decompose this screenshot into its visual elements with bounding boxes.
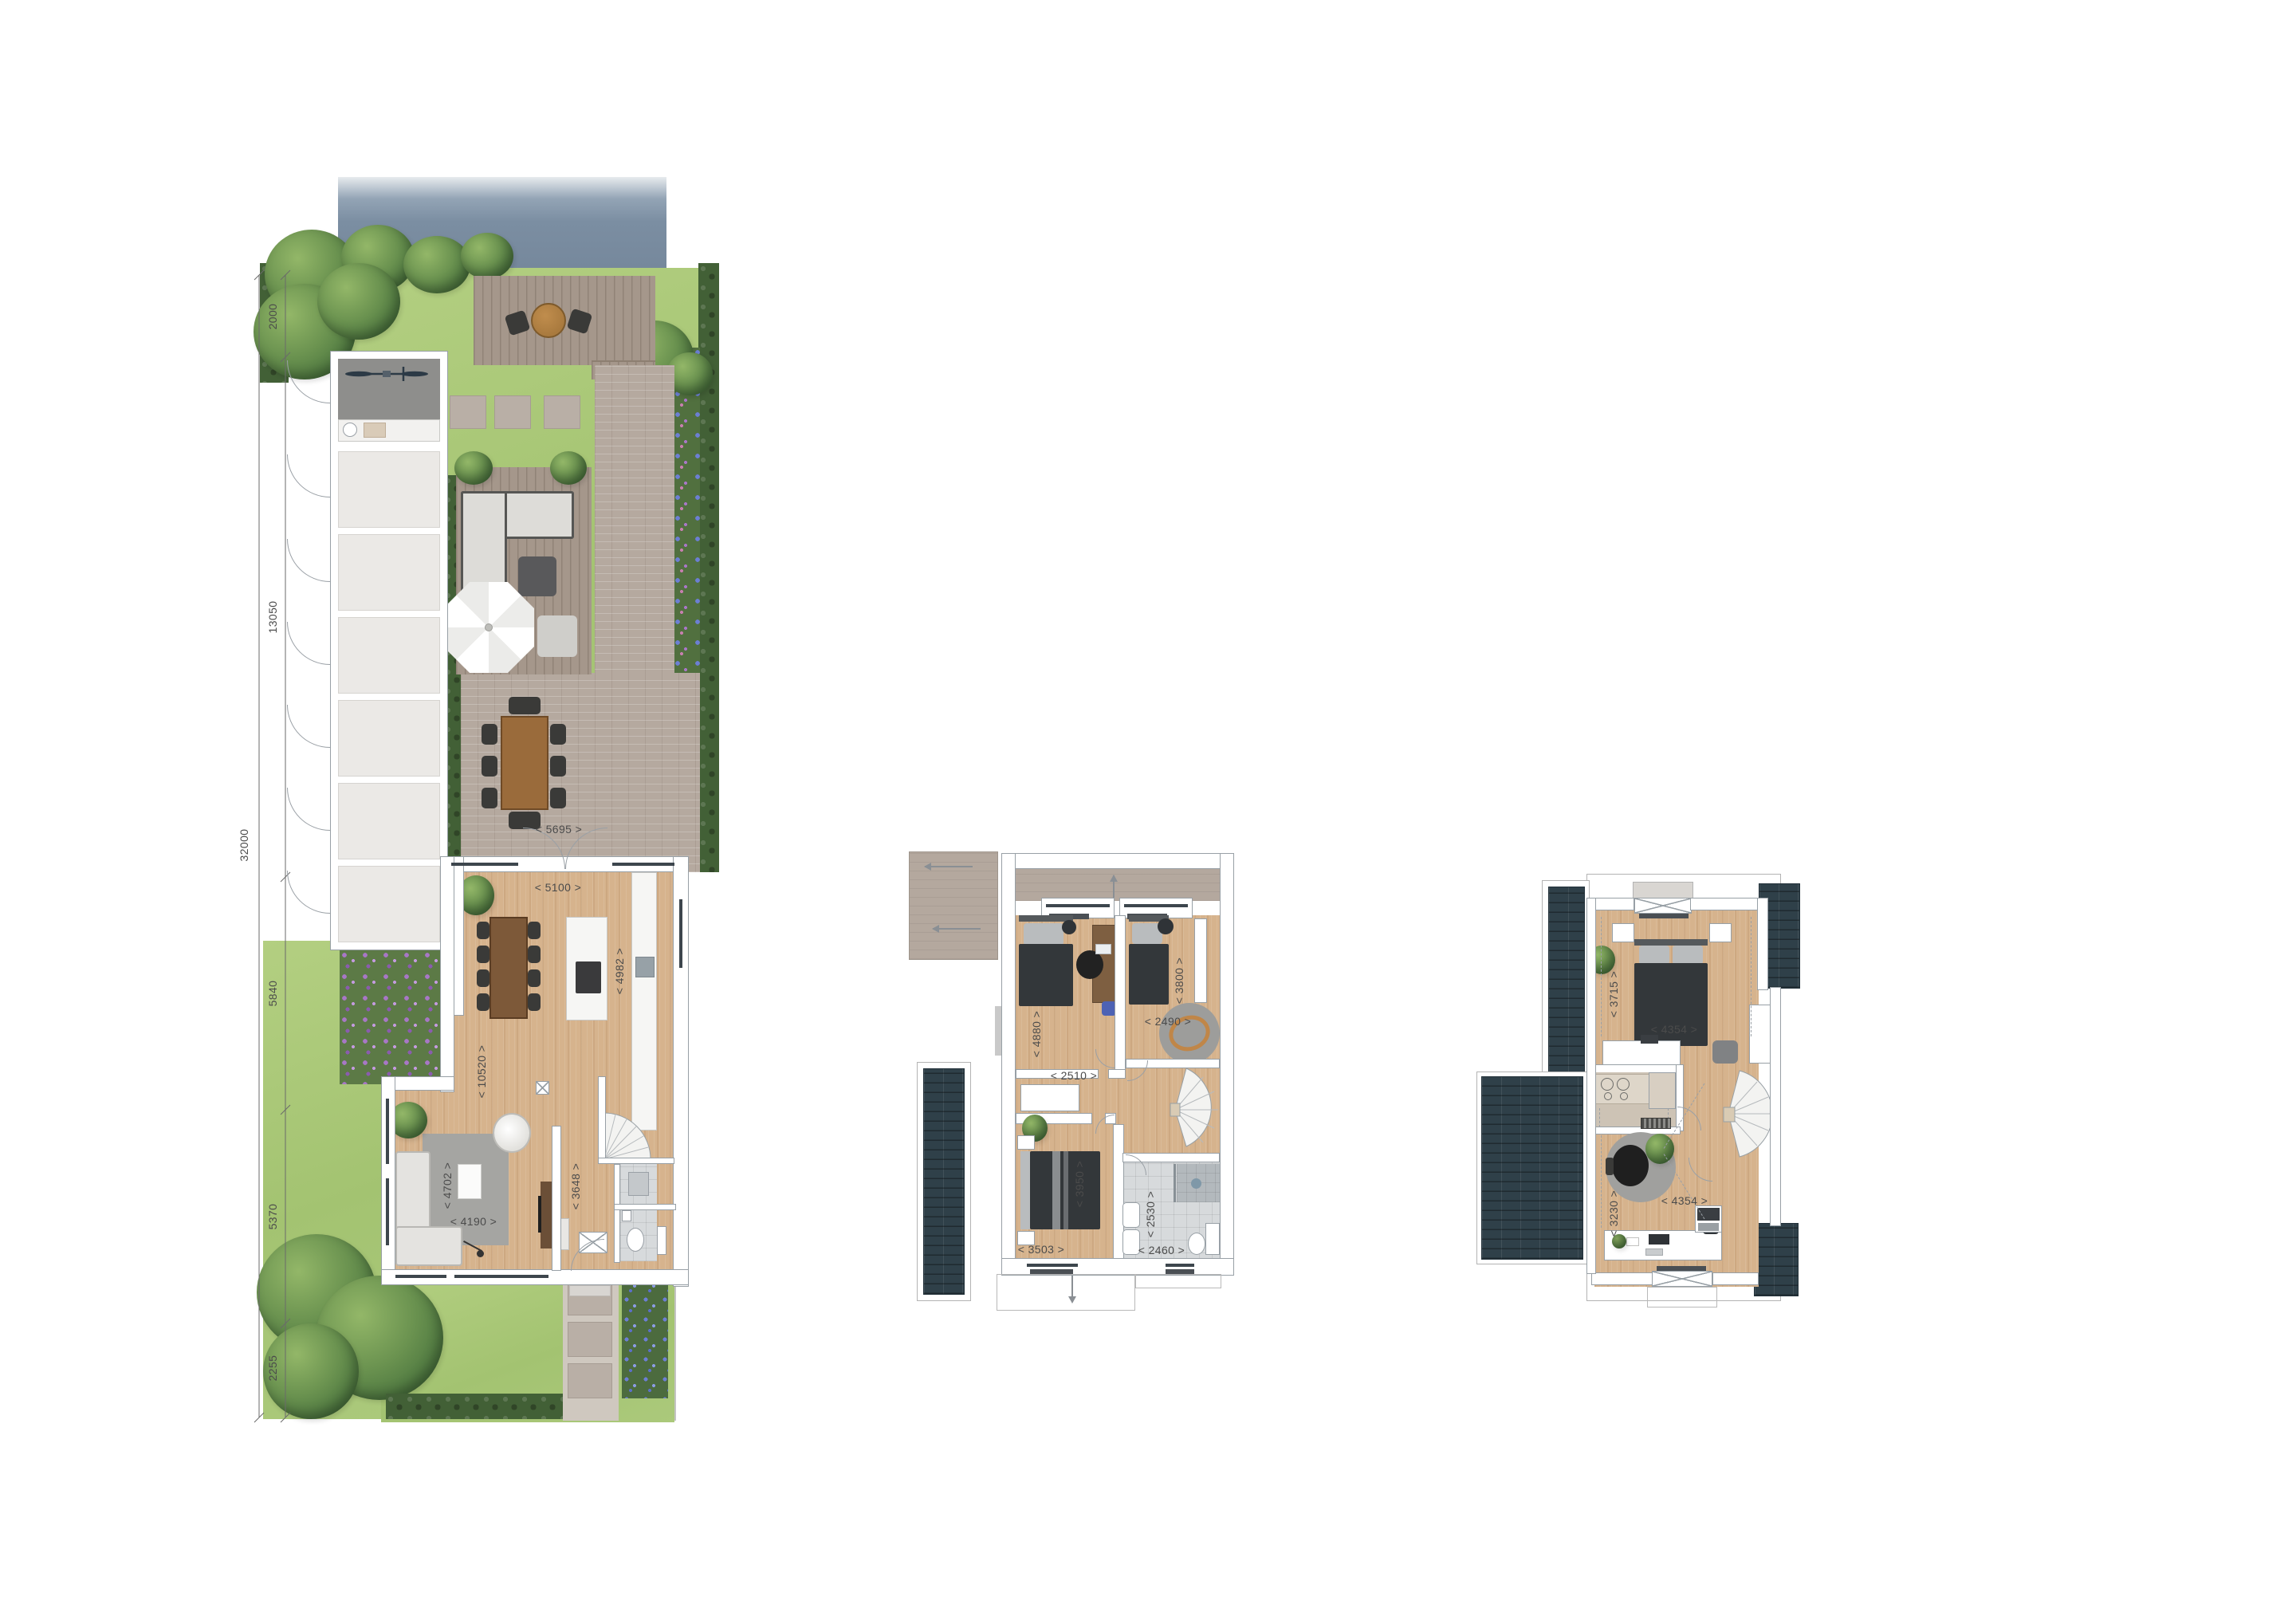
eaves-outline — [1135, 1274, 1221, 1288]
wall-bedroom-divider — [1115, 915, 1126, 1073]
roof-slope-southeast — [1754, 1223, 1799, 1296]
wall-east-upper — [1757, 898, 1768, 990]
wall-north — [1591, 898, 1634, 910]
dim-living-width: < 4702 > — [441, 1162, 454, 1209]
down-arrow-head-icon — [1068, 1296, 1076, 1307]
bed-runner — [1052, 1151, 1060, 1229]
shed-unit — [338, 534, 440, 611]
wardrobe-icon — [1194, 918, 1207, 1003]
coffee-table-icon — [458, 1164, 482, 1199]
wall-toilet2 — [614, 1204, 676, 1210]
bed-duvet — [1019, 944, 1073, 1006]
shed-unit — [338, 866, 440, 942]
dim-attic-study-width: < 4354 > — [1661, 1194, 1708, 1207]
garden-chair-icon — [550, 756, 566, 777]
window-sill-dark — [995, 1006, 1001, 1056]
eaves-outline — [997, 1274, 1135, 1311]
kitchen-sink-icon — [635, 957, 655, 977]
dining-chair-icon — [477, 993, 489, 1011]
shed-unit — [338, 451, 440, 528]
stepping-stone — [494, 395, 531, 429]
nightstand-icon — [1709, 923, 1732, 942]
roof-strip-tiles — [923, 1068, 965, 1295]
dining-chair-icon — [528, 969, 541, 987]
dormer-window-icon — [1634, 898, 1692, 914]
dim-plot-segment: 2255 — [266, 1355, 279, 1382]
tree-icon — [317, 263, 400, 340]
shed-unit — [338, 700, 440, 777]
washbasin-icon — [1122, 1229, 1140, 1255]
garden-chair-icon — [550, 788, 566, 808]
dim-bedroom2-depth: < 3800 > — [1173, 957, 1185, 1004]
wall-toilet — [614, 1164, 620, 1263]
knee-wall-dashed-line — [1599, 1108, 1601, 1127]
stepping-stone — [544, 395, 580, 429]
hand-basin-icon — [622, 1210, 631, 1221]
dining-chair-icon — [528, 946, 541, 963]
shed-cutting-board — [364, 423, 386, 438]
wall-stair — [598, 1076, 606, 1164]
window-glazing — [1046, 904, 1110, 907]
bicycle-icon — [341, 365, 437, 383]
bistro-table-icon — [531, 303, 566, 338]
sofa-icon — [395, 1226, 462, 1266]
toilet-icon — [627, 1228, 644, 1252]
window-glazing — [454, 1275, 548, 1278]
washing-machine-icon — [1649, 1072, 1676, 1109]
garden-chair-icon — [482, 756, 497, 777]
wall-bedroom1-south2 — [1108, 1069, 1126, 1079]
dim-kitchen-width: < 5100 > — [535, 881, 581, 894]
knee-wall-dashed-line — [1751, 917, 1752, 1036]
sink-bowl-icon — [1604, 1092, 1612, 1100]
dining-chair-icon — [477, 922, 489, 939]
wardrobe-icon — [1020, 1084, 1079, 1111]
knee-wall-dashed-line — [1601, 917, 1602, 1036]
bed-runner — [1063, 1151, 1068, 1229]
tv-icon — [538, 1196, 541, 1233]
dim-plot-segment: 5370 — [266, 1204, 279, 1230]
dim-bathroom-depth: < 2530 > — [1144, 1191, 1157, 1237]
window-glazing — [386, 1178, 389, 1245]
window-glazing — [386, 1099, 389, 1164]
keyboard-icon — [1645, 1248, 1663, 1256]
shed-unit — [338, 783, 440, 859]
dim-bedroom1-width: < 2510 > — [1051, 1069, 1097, 1082]
wall-south — [1591, 1272, 1653, 1285]
garden-dining-table-icon — [501, 716, 548, 810]
garden-chair-icon — [509, 697, 541, 714]
low-cabinet-icon — [1602, 1040, 1681, 1068]
dim-living-length: < 10520 > — [475, 1045, 488, 1099]
left-arrow-icon — [933, 928, 981, 930]
dim-plot-segment: 2000 — [266, 304, 279, 330]
washbasin-icon — [1122, 1202, 1140, 1228]
left-arrow-head-icon — [920, 863, 931, 871]
pouf-icon — [518, 556, 556, 596]
toilet-icon — [1188, 1233, 1205, 1255]
garden-chair-icon — [482, 788, 497, 808]
left-arrow-head-icon — [928, 925, 939, 933]
garden-chair-icon — [550, 724, 566, 745]
knee-wall-dashed-line — [1601, 1135, 1602, 1228]
armchair-icon — [493, 1113, 531, 1153]
wall-hall — [552, 1126, 561, 1271]
wall-lamp-icon — [1062, 920, 1076, 934]
window-glazing — [612, 863, 674, 866]
laptop-icon — [1095, 944, 1111, 954]
sink-bowl-icon — [1617, 1078, 1630, 1091]
dim-attic-study-depth: < 3230 > — [1607, 1190, 1620, 1237]
garden-path — [595, 365, 674, 678]
flower-bed-front — [622, 1274, 668, 1398]
stepping-stone — [450, 395, 486, 429]
dim-plot-segment: 5840 — [266, 981, 279, 1007]
window-glazing — [679, 899, 682, 968]
pouf-icon — [1712, 1040, 1738, 1064]
tv-cabinet-icon — [541, 1182, 552, 1248]
window-glazing — [1166, 1264, 1194, 1267]
dining-table — [489, 917, 528, 1019]
shed-unit — [338, 617, 440, 694]
fence-line — [674, 1274, 676, 1421]
bed-pillow — [1024, 923, 1063, 946]
dim-master-depth: < 3950 > — [1073, 1161, 1086, 1207]
toilet-cistern — [1205, 1223, 1220, 1255]
office-chair-arm-icon — [1606, 1158, 1614, 1175]
doormat-icon — [569, 1285, 611, 1296]
speaker-icon — [1158, 918, 1174, 934]
pouf-icon — [537, 615, 577, 657]
cooktop-icon — [576, 961, 601, 993]
dim-rug-width: < 4190 > — [450, 1215, 497, 1228]
dining-chair-icon — [477, 946, 489, 963]
dim-master-width: < 3503 > — [1018, 1243, 1064, 1256]
dining-chair-icon — [528, 922, 541, 939]
flat-roof-band — [1016, 869, 1220, 901]
parasol-pole-icon — [485, 623, 493, 631]
shrub-icon — [403, 236, 470, 293]
window-glazing — [1027, 1264, 1078, 1267]
dim-bathroom-width: < 2460 > — [1138, 1244, 1185, 1256]
shaft-icon — [536, 1081, 549, 1095]
wall-west-upper2 — [440, 856, 454, 1092]
wall-north — [1001, 853, 1234, 869]
spiral-staircase-icon — [1719, 1064, 1773, 1165]
bed-pillow — [1673, 946, 1703, 965]
dim-attic-bedroom-width: < 4354 > — [1651, 1023, 1697, 1036]
dining-chair-icon — [477, 969, 489, 987]
window-glazing — [451, 863, 518, 866]
hedge-right — [698, 263, 719, 872]
spiral-staircase-icon — [1164, 1068, 1221, 1146]
nightstand-icon — [1612, 923, 1634, 942]
wall-north2 — [1690, 898, 1760, 910]
wall-stair-landing — [598, 1158, 674, 1164]
shrub-icon — [461, 233, 513, 279]
kitchen-counter — [631, 872, 657, 1131]
garden-chair-icon — [482, 724, 497, 745]
spiral-staircase-icon — [603, 1111, 657, 1161]
shower-glass — [1174, 1164, 1176, 1202]
dim-hall-depth: < 3648 > — [569, 1163, 582, 1209]
wall-west — [1001, 853, 1016, 1276]
wall-east — [1220, 853, 1234, 1276]
dim-kitchen-depth: < 4982 > — [613, 948, 626, 994]
left-arrow-icon — [925, 866, 973, 867]
dim-plot-segment: 13050 — [266, 601, 279, 634]
shrub-icon — [454, 451, 493, 485]
dim-attic-bedroom-depth: < 3715 > — [1607, 971, 1620, 1017]
desk-chair-icon — [1076, 950, 1103, 979]
window-glazing — [1124, 904, 1188, 907]
sink-bowl-icon — [1601, 1078, 1614, 1091]
roof-slope-southwest — [1481, 1076, 1583, 1260]
wall-south2 — [1712, 1272, 1759, 1285]
scanner-icon — [1698, 1223, 1719, 1231]
stepping-stone — [568, 1322, 612, 1357]
closet-icon — [1749, 1005, 1771, 1064]
sink-bowl-icon — [1620, 1092, 1628, 1100]
shower-head-icon — [1191, 1178, 1201, 1189]
dim-patio-width: < 5695 > — [536, 823, 582, 836]
radiator-icon — [1641, 1118, 1671, 1129]
dim-plot-total: 32000 — [238, 829, 250, 862]
tablet-icon — [1641, 1035, 1658, 1044]
wall-east — [1770, 987, 1781, 1226]
dormer-window-icon — [1652, 1271, 1712, 1287]
window-glazing — [395, 1275, 446, 1278]
stepping-stone — [568, 1363, 612, 1398]
dining-chair-icon — [528, 993, 541, 1011]
dormer-eave-outline — [1647, 1287, 1717, 1307]
bed-headboard-cushions — [1020, 1151, 1030, 1229]
up-arrow-head-icon — [1110, 871, 1118, 882]
plot-dimension-lines — [223, 263, 311, 1435]
bed-pillow — [1639, 946, 1669, 965]
down-arrow-stem-icon — [1071, 1276, 1073, 1298]
office-chair-icon — [1612, 1145, 1649, 1186]
dim-bedroom1-depth: < 4880 > — [1030, 1011, 1043, 1057]
utility-unit — [628, 1172, 649, 1196]
window-sill-dark — [1639, 914, 1689, 918]
paper-stack-icon — [1626, 1237, 1639, 1246]
monitor-icon — [1649, 1234, 1669, 1245]
wall-west — [1586, 898, 1596, 1274]
nightstand-icon — [1017, 1135, 1035, 1150]
shed-sink-icon — [343, 423, 357, 437]
floor-plans-canvas: < 5695 > < 5100 > < 4982 > < 10520 > < 4… — [0, 0, 2296, 1624]
dim-bedroom2-width: < 2490 > — [1145, 1015, 1191, 1028]
toilet-cistern — [657, 1226, 666, 1255]
shrub-icon — [550, 451, 587, 485]
bed-duvet — [1129, 944, 1169, 1005]
bed-headboard — [1634, 939, 1708, 946]
